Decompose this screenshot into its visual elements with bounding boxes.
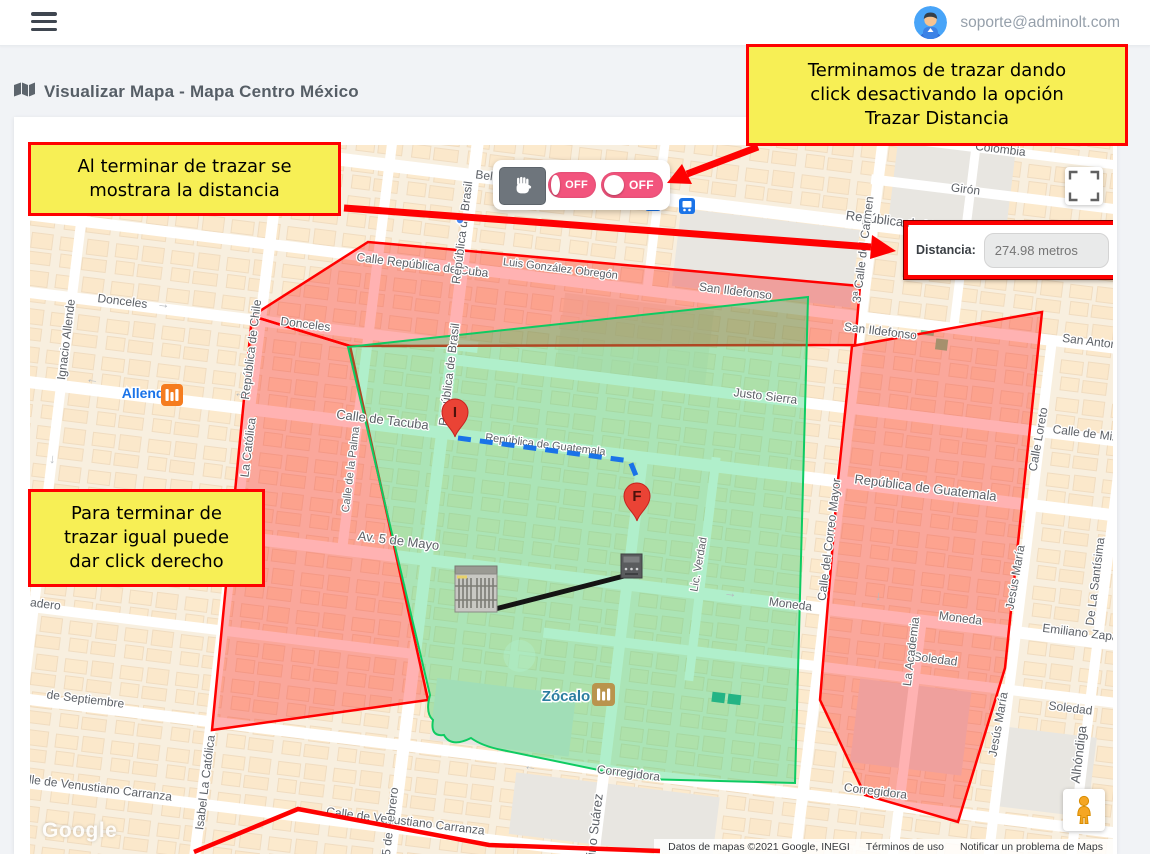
- attribution-terms-link[interactable]: Términos de uso: [866, 841, 944, 853]
- fullscreen-icon: [1065, 167, 1103, 205]
- annotation-box-right-click: Para terminar de trazar igual puede dar …: [28, 489, 265, 587]
- poi-dot: [456, 216, 464, 224]
- page-title: Visualizar Mapa - Mapa Centro México: [44, 82, 359, 102]
- drag-toolbar: OFF OFF: [493, 160, 670, 210]
- road-arrow: →: [156, 295, 171, 311]
- annotation-box-finish-trace: Terminamos de trazar dando click desacti…: [746, 44, 1128, 146]
- metro-icon-allende[interactable]: [161, 384, 183, 406]
- distance-highlight-box: Distancia: 274.98 metros: [904, 221, 1113, 279]
- annotation-box-distance-shown: Al terminar de trazar se mostrara la dis…: [28, 142, 341, 216]
- google-watermark: Google: [42, 819, 117, 843]
- toggle-knob: [604, 175, 624, 195]
- hamburger-menu-button[interactable]: [31, 12, 57, 33]
- olt-device-icon[interactable]: [455, 566, 497, 612]
- attribution-copyright: Datos de mapas ©2021 Google, INEGI: [668, 841, 850, 853]
- toggle-trace-distance-off[interactable]: OFF: [601, 172, 663, 198]
- distance-value-field[interactable]: 274.98 metros: [984, 233, 1109, 268]
- road-arrow: ←: [233, 384, 248, 400]
- road-arrow: →: [723, 584, 738, 600]
- hand-tool-button[interactable]: [499, 167, 546, 205]
- toggle-label: OFF: [629, 178, 654, 192]
- pegman-button[interactable]: [1063, 789, 1105, 831]
- toggle-label: OFF: [565, 179, 588, 191]
- distance-widget: Distancia: 274.98 metros: [908, 225, 1113, 275]
- toggle-knob: [551, 175, 560, 195]
- user-menu[interactable]: soporte@adminolt.com: [914, 6, 1120, 39]
- fullscreen-button[interactable]: [1065, 167, 1103, 205]
- toggle-trace-zone-off[interactable]: OFF: [548, 172, 596, 198]
- marker-start-letter: I: [453, 404, 457, 421]
- user-email: soporte@adminolt.com: [960, 14, 1120, 32]
- station-zocalo-label[interactable]: Zócalo: [542, 688, 590, 705]
- switch-device-icon[interactable]: [621, 554, 642, 578]
- top-navbar: soporte@adminolt.com: [0, 0, 1150, 46]
- bus-station-icon[interactable]: [679, 198, 695, 214]
- road-arrow: ←: [523, 757, 538, 773]
- user-avatar: [914, 6, 947, 39]
- road-arrow: ←: [85, 370, 100, 386]
- hand-icon: [512, 175, 534, 197]
- attribution-bar: Datos de mapas ©2021 Google, INEGI Térmi…: [654, 839, 1113, 854]
- marker-end-letter: F: [632, 488, 641, 505]
- breadcrumb: Visualizar Mapa - Mapa Centro México: [14, 81, 359, 103]
- metro-icon-zocalo[interactable]: [592, 683, 615, 706]
- attribution-report-link[interactable]: Notificar un problema de Maps: [960, 841, 1103, 853]
- distance-label: Distancia:: [916, 243, 976, 257]
- map-icon: [14, 81, 35, 103]
- pegman-icon: [1071, 795, 1097, 825]
